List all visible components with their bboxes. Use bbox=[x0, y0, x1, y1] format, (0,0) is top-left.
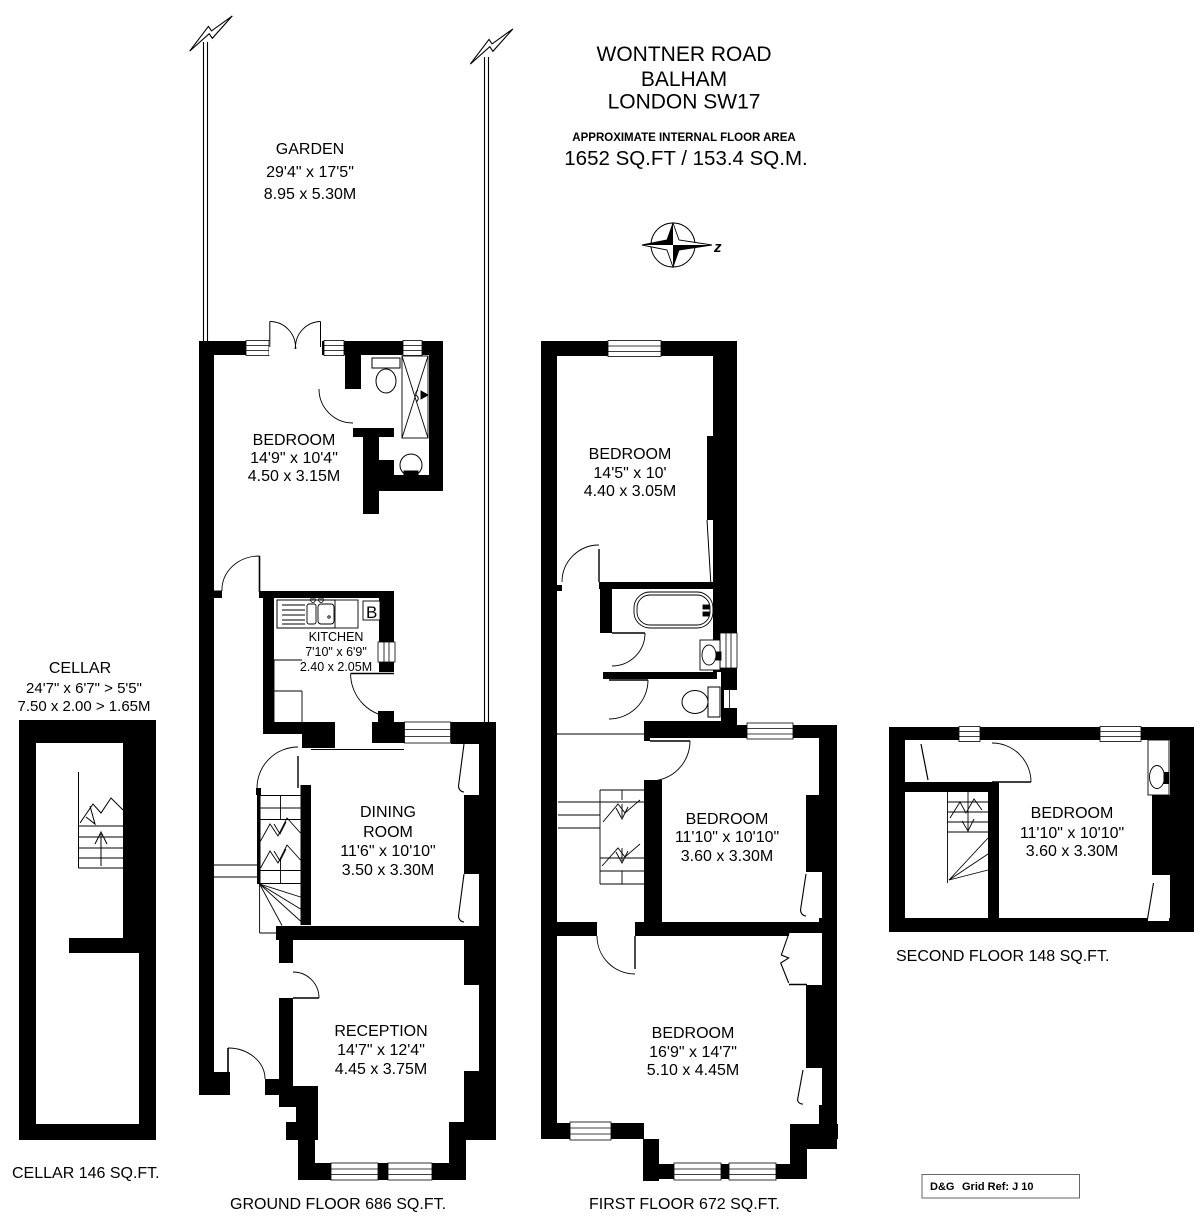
svg-text:11'6" x 10'10": 11'6" x 10'10" bbox=[340, 843, 435, 860]
svg-text:8.95 x 5.30M: 8.95 x 5.30M bbox=[264, 186, 357, 203]
svg-text:WONTNER ROAD: WONTNER ROAD bbox=[597, 43, 772, 66]
svg-text:CELLAR 146 SQ.FT.: CELLAR 146 SQ.FT. bbox=[12, 1165, 160, 1182]
svg-text:BALHAM: BALHAM bbox=[641, 68, 727, 91]
svg-text:RECEPTION: RECEPTION bbox=[334, 1023, 427, 1040]
svg-text:5.10 x 4.45M: 5.10 x 4.45M bbox=[647, 1062, 740, 1079]
svg-text:BEDROOM: BEDROOM bbox=[652, 1025, 735, 1042]
svg-text:24'7" x 6'7" > 5'5": 24'7" x 6'7" > 5'5" bbox=[26, 680, 142, 697]
svg-text:3.60 x 3.30M: 3.60 x 3.30M bbox=[681, 848, 774, 865]
svg-text:1652 SQ.FT / 153.4 SQ.M.: 1652 SQ.FT / 153.4 SQ.M. bbox=[564, 147, 807, 170]
svg-text:7'10" x 6'9": 7'10" x 6'9" bbox=[305, 645, 367, 659]
svg-text:14'9" x 10'4": 14'9" x 10'4" bbox=[250, 450, 338, 467]
svg-text:BEDROOM: BEDROOM bbox=[589, 446, 672, 463]
svg-text:CELLAR: CELLAR bbox=[49, 660, 111, 677]
svg-text:z: z bbox=[713, 239, 722, 256]
svg-text:4.50 x 3.15M: 4.50 x 3.15M bbox=[248, 468, 341, 485]
svg-text:16'9" x 14'7": 16'9" x 14'7" bbox=[649, 1044, 737, 1061]
svg-text:4.40 x 3.05M: 4.40 x 3.05M bbox=[584, 483, 677, 500]
svg-text:BEDROOM: BEDROOM bbox=[1031, 805, 1114, 822]
svg-text:B: B bbox=[366, 603, 377, 622]
svg-text:29'4" x 17'5": 29'4" x 17'5" bbox=[266, 164, 354, 181]
svg-text:LONDON SW17: LONDON SW17 bbox=[608, 91, 761, 114]
svg-text:2.40 x 2.05M: 2.40 x 2.05M bbox=[300, 660, 372, 674]
svg-text:Grid Ref: J 10: Grid Ref: J 10 bbox=[962, 1181, 1034, 1193]
svg-text:GARDEN: GARDEN bbox=[276, 141, 344, 158]
svg-text:3.60 x 3.30M: 3.60 x 3.30M bbox=[1026, 843, 1119, 860]
svg-text:7.50 x 2.00 > 1.65M: 7.50 x 2.00 > 1.65M bbox=[17, 698, 150, 715]
svg-text:BEDROOM: BEDROOM bbox=[253, 432, 336, 449]
svg-text:BEDROOM: BEDROOM bbox=[686, 811, 769, 828]
svg-text:ROOM: ROOM bbox=[363, 824, 413, 841]
svg-text:14'7" x 12'4": 14'7" x 12'4" bbox=[337, 1042, 425, 1059]
svg-text:3.50 x 3.30M: 3.50 x 3.30M bbox=[342, 862, 435, 879]
svg-text:11'10" x 10'10": 11'10" x 10'10" bbox=[1020, 825, 1124, 842]
svg-text:SECOND FLOOR 148 SQ.FT.: SECOND FLOOR 148 SQ.FT. bbox=[896, 948, 1109, 965]
svg-text:GROUND FLOOR 686 SQ.FT.: GROUND FLOOR 686 SQ.FT. bbox=[230, 1196, 446, 1213]
svg-text:D&G: D&G bbox=[930, 1181, 954, 1193]
svg-text:FIRST FLOOR 672 SQ.FT.: FIRST FLOOR 672 SQ.FT. bbox=[589, 1196, 780, 1213]
svg-text:4.45 x 3.75M: 4.45 x 3.75M bbox=[335, 1061, 428, 1078]
svg-text:KITCHEN: KITCHEN bbox=[309, 630, 364, 644]
svg-text:APPROXIMATE INTERNAL FLOOR ARE: APPROXIMATE INTERNAL FLOOR AREA bbox=[572, 132, 795, 144]
svg-text:14'5" x 10': 14'5" x 10' bbox=[593, 465, 666, 482]
svg-text:DINING: DINING bbox=[360, 804, 416, 821]
svg-text:11'10" x 10'10": 11'10" x 10'10" bbox=[675, 829, 779, 846]
